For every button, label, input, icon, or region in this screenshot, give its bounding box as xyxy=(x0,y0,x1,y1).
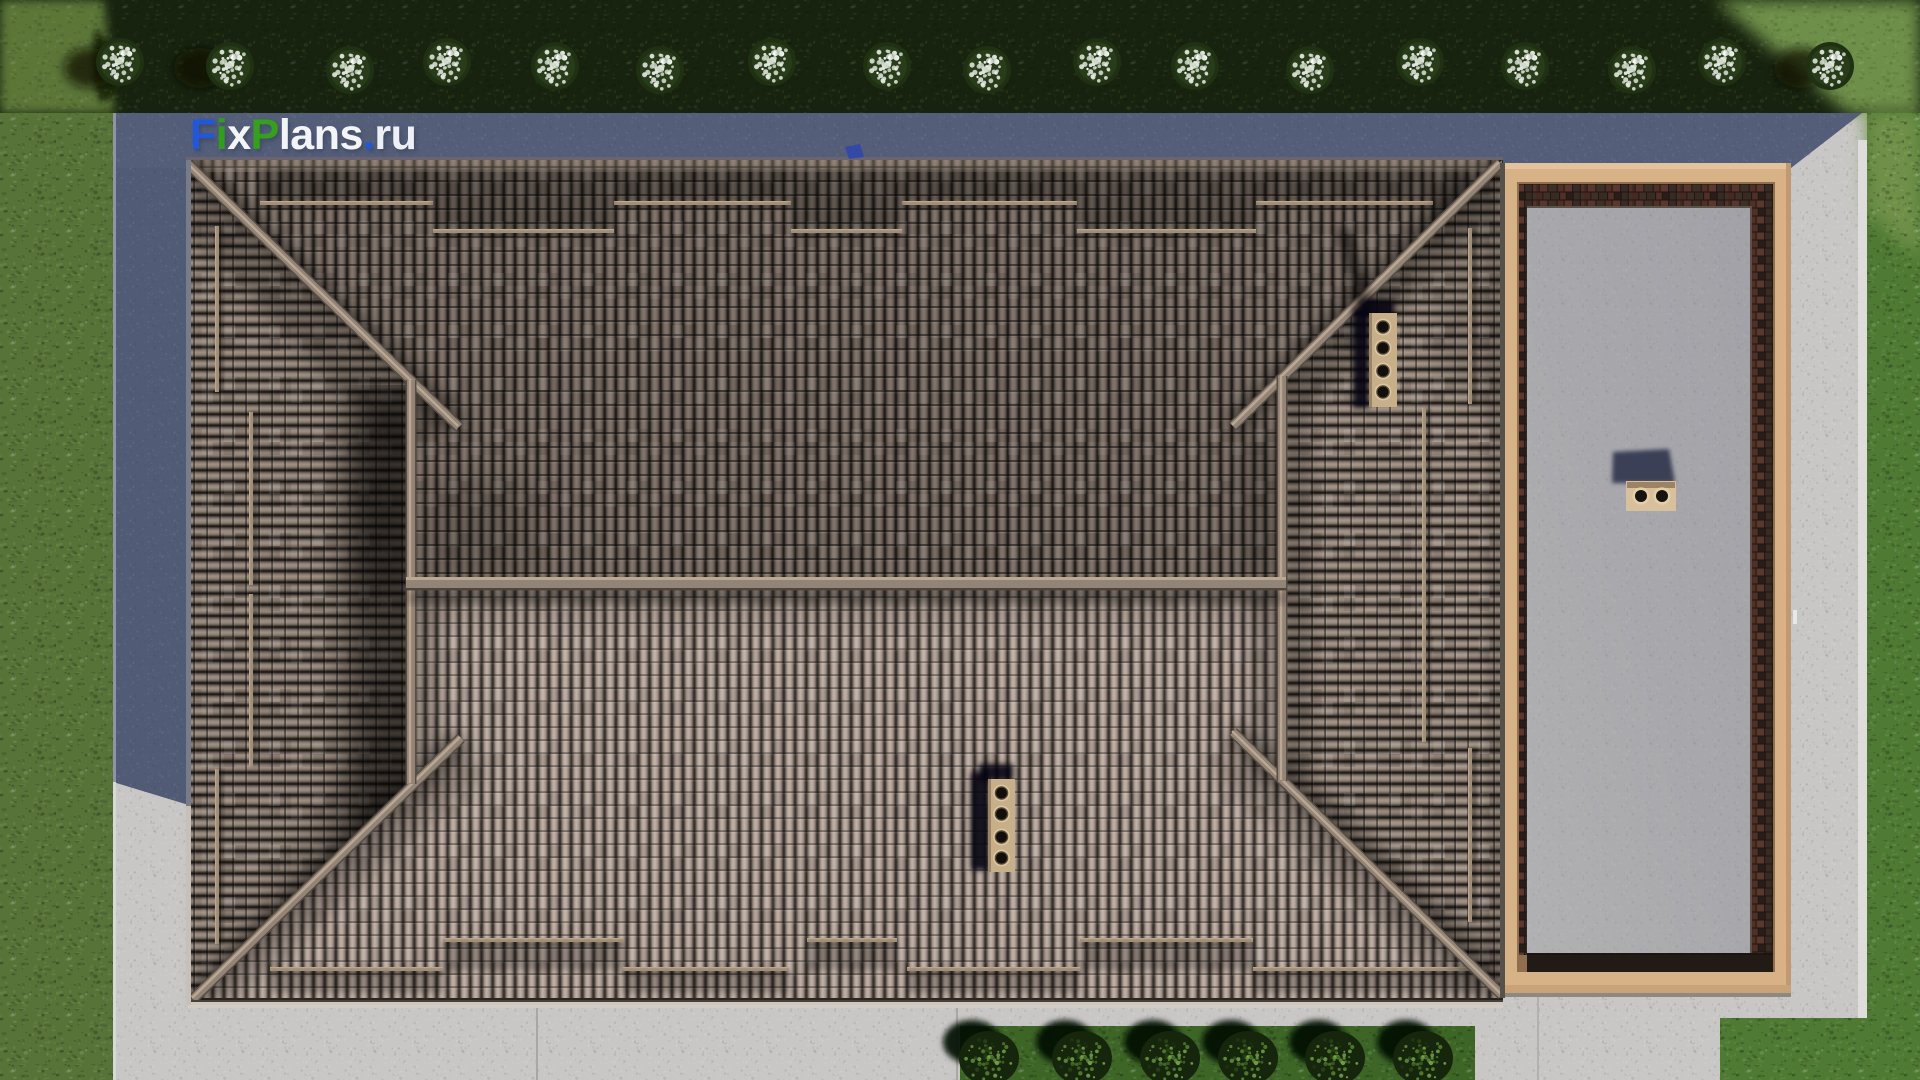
svg-text:FixPlans.ru: FixPlans.ru xyxy=(190,111,416,159)
